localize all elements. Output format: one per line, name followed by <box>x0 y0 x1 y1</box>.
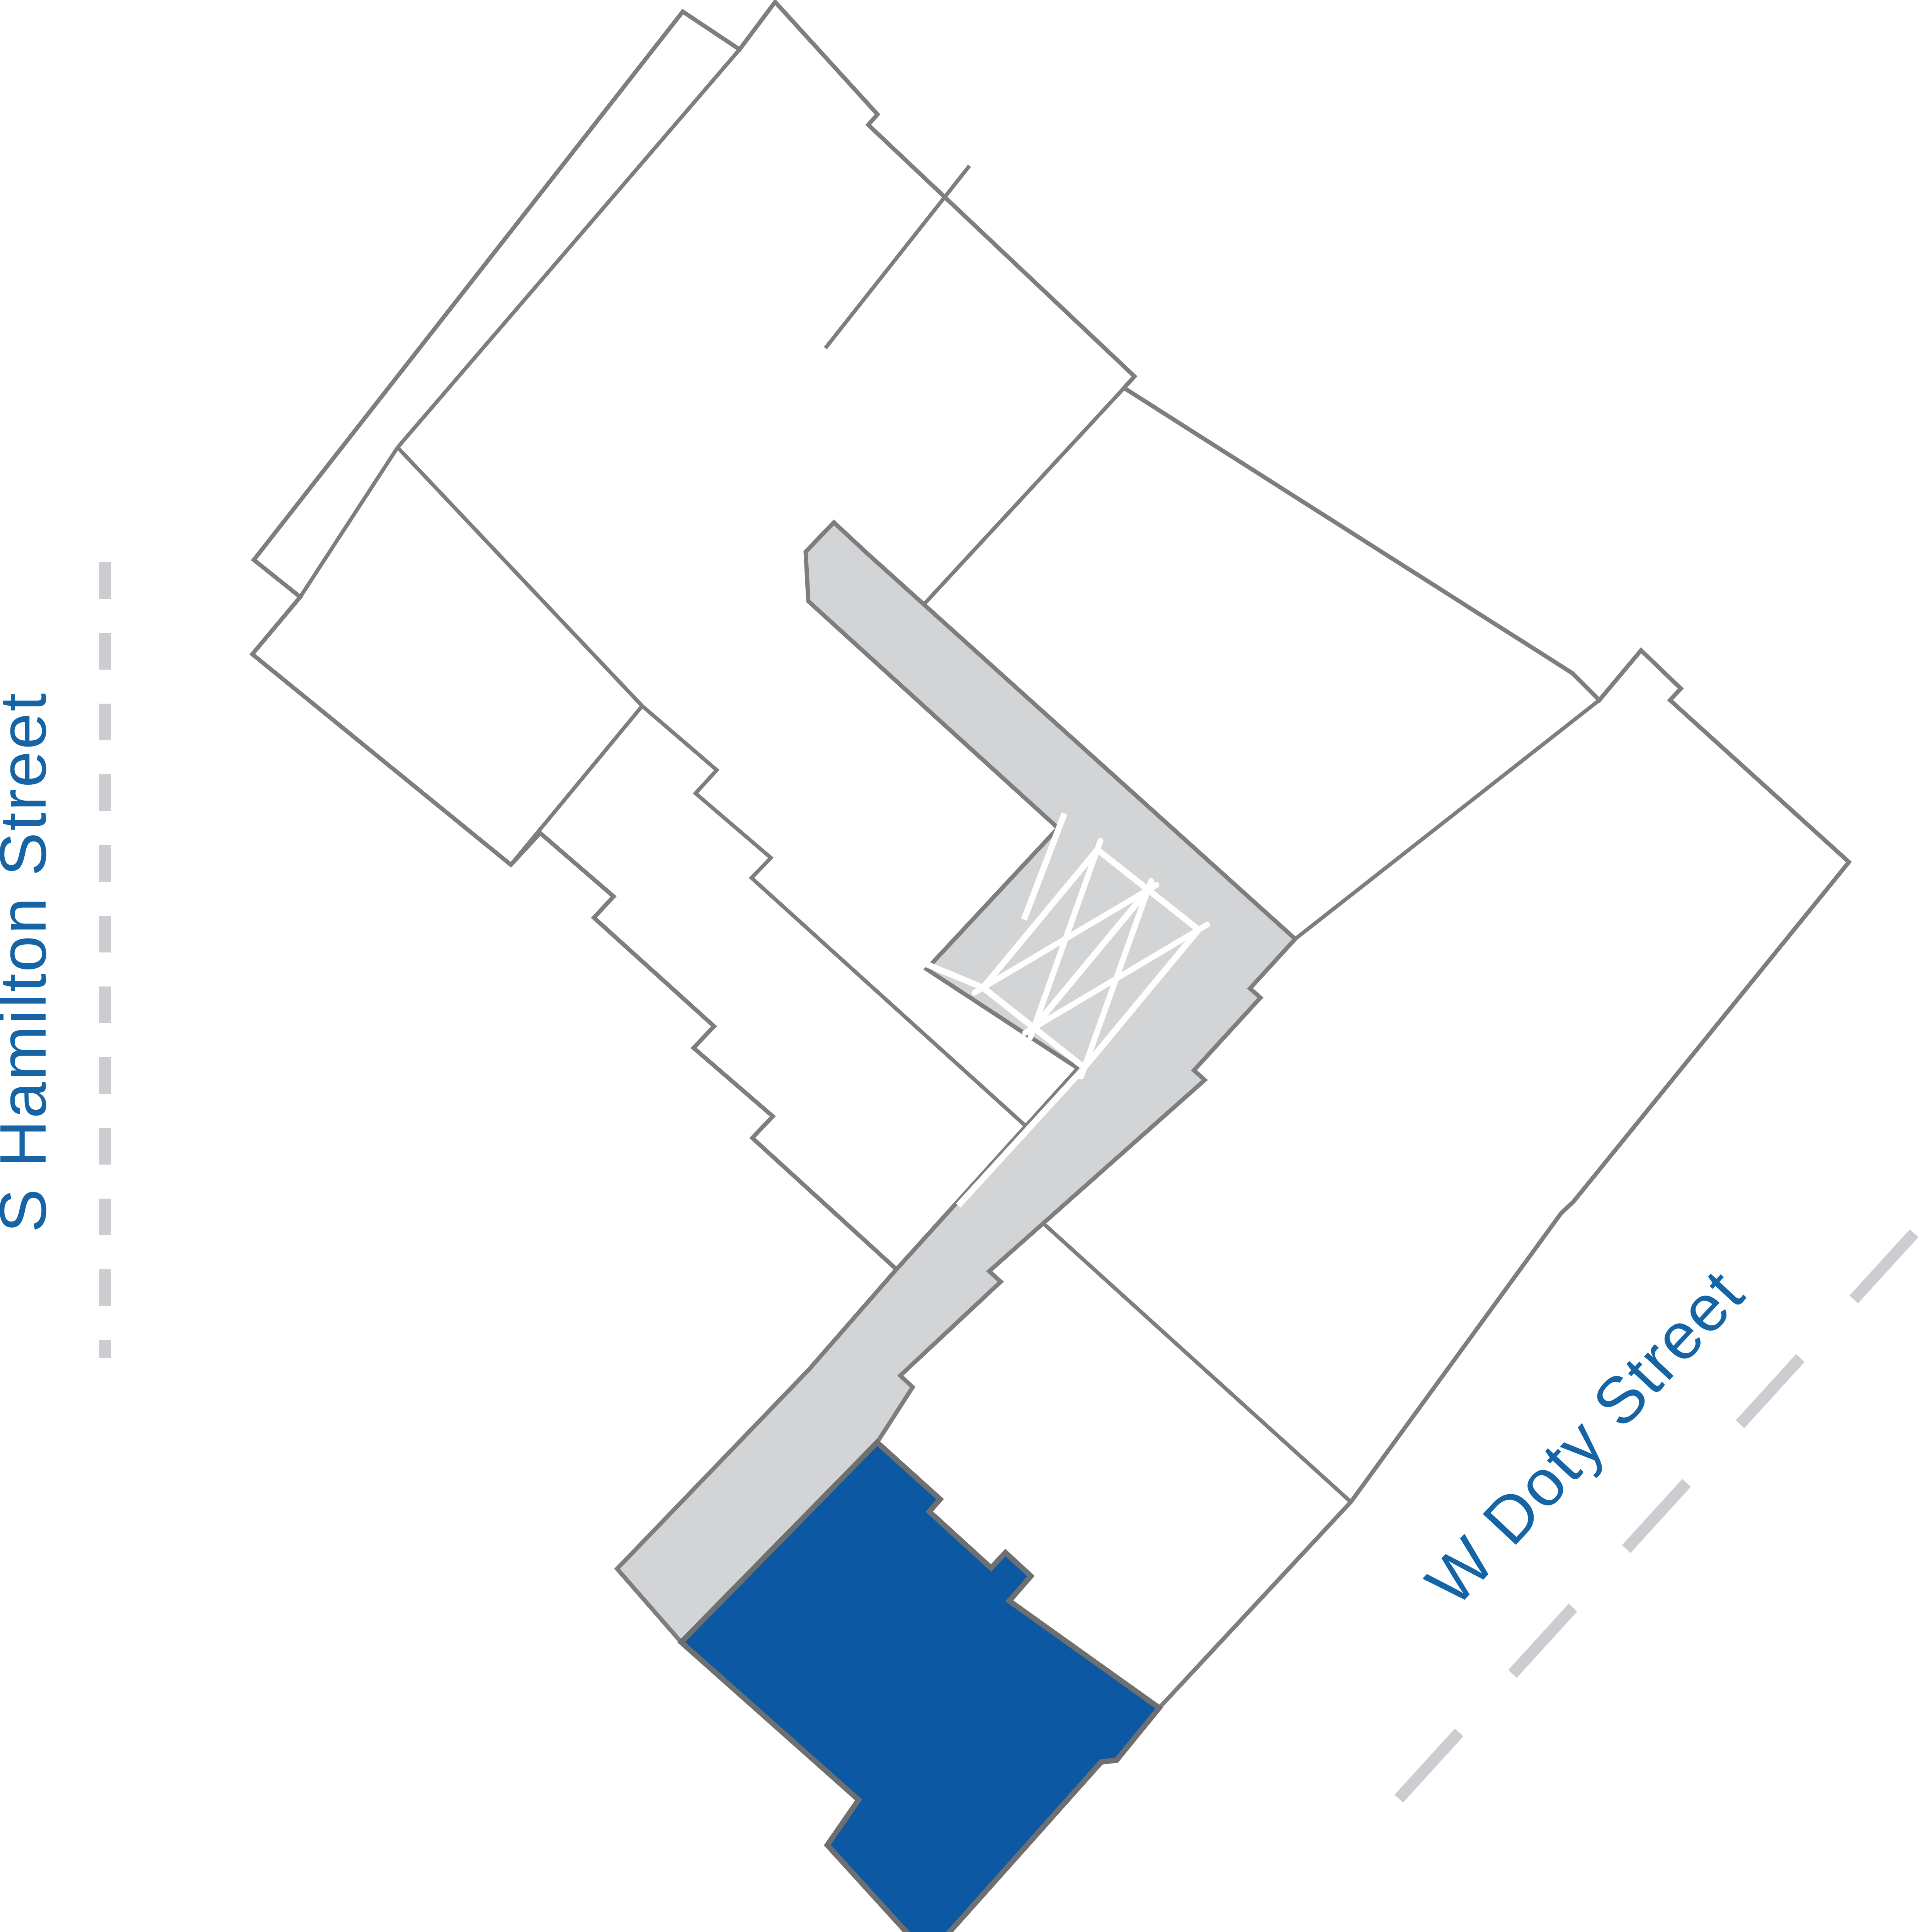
street-label-hamilton: S Hamilton Street <box>0 692 60 1233</box>
map-root: S Hamilton Street W Doty Street Capitol … <box>0 0 1932 1932</box>
building-plan <box>252 2 1849 1932</box>
